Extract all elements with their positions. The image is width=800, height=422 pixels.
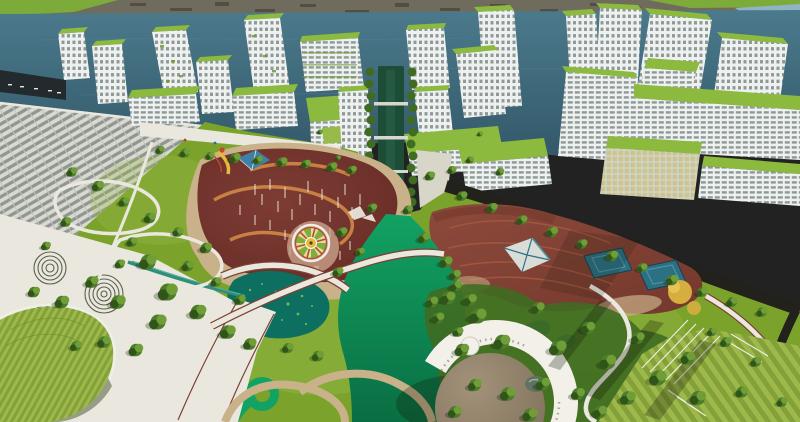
masterplan-rendering [0,0,800,422]
rendering-canvas [0,0,800,422]
glass-atrium-building [600,136,702,200]
